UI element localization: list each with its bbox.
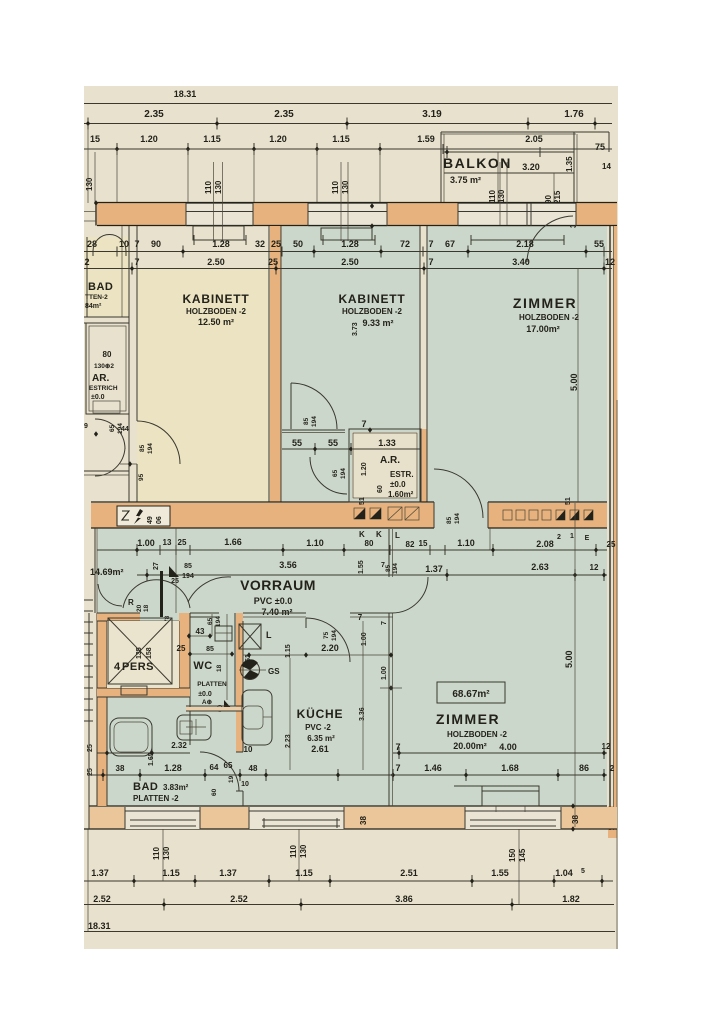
svg-text:E: E [585,535,590,542]
svg-text:R: R [128,598,134,607]
svg-text:1.66: 1.66 [224,537,242,547]
svg-text:2.32: 2.32 [171,741,187,750]
svg-text:68.67m²: 68.67m² [452,689,490,700]
svg-text:1.60m²: 1.60m² [388,490,414,499]
svg-text:110: 110 [331,181,340,194]
svg-text:BALKON: BALKON [443,155,512,171]
svg-text:85: 85 [446,516,453,524]
svg-text:194: 194 [340,468,347,479]
svg-text:1.28: 1.28 [212,239,230,249]
svg-text:PVC -2: PVC -2 [305,723,331,732]
svg-text:1.00: 1.00 [137,538,155,548]
svg-text:2.23: 2.23 [285,734,292,748]
svg-text:2.61: 2.61 [311,744,329,754]
svg-text:±0.0: ±0.0 [390,480,406,489]
svg-text:145: 145 [518,848,527,862]
svg-text:60: 60 [211,788,218,796]
svg-text:194: 194 [454,513,461,524]
svg-text:KABINETT: KABINETT [338,292,405,306]
svg-text:7: 7 [395,763,400,773]
svg-text:1.37: 1.37 [91,868,109,878]
svg-text:3.40: 3.40 [512,257,530,267]
svg-text:1.33: 1.33 [378,438,396,448]
svg-text:A⊕: A⊕ [202,699,213,706]
svg-text:2.50: 2.50 [341,257,359,267]
svg-text:1.37: 1.37 [219,868,237,878]
svg-text:3.36: 3.36 [359,707,366,721]
svg-text:55: 55 [292,438,302,448]
svg-text:25: 25 [87,744,94,752]
svg-text:1.55: 1.55 [491,868,509,878]
svg-text:2: 2 [84,257,89,267]
svg-text:1.20: 1.20 [361,462,368,476]
svg-text:7: 7 [428,257,433,267]
svg-text:25: 25 [607,540,616,549]
svg-text:7: 7 [134,257,139,267]
svg-text:1.15: 1.15 [295,868,313,878]
svg-text:25: 25 [171,578,179,585]
svg-text:3.20: 3.20 [522,162,540,172]
svg-text:85: 85 [206,646,214,653]
svg-text:1.65: 1.65 [148,752,155,766]
svg-text:ESTR.: ESTR. [390,470,414,479]
svg-text:PLATTEN: PLATTEN [197,681,227,688]
svg-text:ESTRICH: ESTRICH [89,385,118,392]
svg-text:1.15: 1.15 [203,134,221,144]
svg-text:K: K [359,530,365,539]
svg-text:12: 12 [590,563,599,572]
svg-text:BAD: BAD [133,781,158,793]
svg-text:130: 130 [85,177,94,191]
svg-text:85: 85 [303,417,310,425]
svg-text:110: 110 [488,190,497,203]
svg-text:38: 38 [359,816,368,825]
svg-text:1.35: 1.35 [565,156,574,172]
svg-text:1.28: 1.28 [341,239,359,249]
svg-text:5.00: 5.00 [564,650,574,668]
svg-text:50: 50 [293,239,303,249]
svg-text:18: 18 [143,604,150,612]
svg-text:1: 1 [570,533,574,540]
svg-text:3.73: 3.73 [352,322,359,336]
svg-text:55: 55 [328,438,338,448]
svg-text:14: 14 [602,162,611,171]
svg-text:194: 194 [215,616,222,627]
svg-text:±0.0: ±0.0 [91,394,105,401]
svg-text:7: 7 [361,419,366,429]
svg-text:1.20: 1.20 [269,134,287,144]
svg-text:110: 110 [289,845,298,858]
svg-text:65: 65 [224,761,233,770]
svg-text:28: 28 [87,239,97,249]
svg-text:GS: GS [268,667,280,676]
svg-text:80: 80 [365,539,374,548]
svg-text:1.76: 1.76 [564,109,584,120]
svg-text:130: 130 [214,180,223,194]
svg-text:HOLZBODEN -2: HOLZBODEN -2 [342,307,403,316]
svg-text:130: 130 [299,844,308,858]
svg-text:10: 10 [244,745,253,754]
svg-text:ZIMMER: ZIMMER [436,711,500,727]
svg-text:20.00m²: 20.00m² [453,741,487,751]
svg-text:65: 65 [207,617,214,625]
svg-text:L: L [266,630,272,640]
svg-text:2.50: 2.50 [207,257,225,267]
svg-text:5: 5 [581,868,585,875]
svg-text:95: 95 [138,473,145,481]
svg-text:TTEN-2: TTEN-2 [85,294,108,301]
svg-text:110: 110 [204,181,213,194]
svg-text:PLATTEN -2: PLATTEN -2 [133,794,179,803]
svg-text:1.68: 1.68 [501,763,519,773]
svg-text:2: 2 [610,764,615,773]
svg-text:L: L [395,531,400,540]
svg-text:150: 150 [508,848,517,862]
svg-text:25: 25 [271,239,281,249]
svg-text:2: 2 [557,534,561,541]
svg-text:85: 85 [139,444,146,452]
svg-text:12: 12 [602,742,611,751]
svg-text:PVC ±0.0: PVC ±0.0 [254,596,292,606]
svg-text:67: 67 [445,239,455,249]
svg-text:HOLZBODEN -2: HOLZBODEN -2 [447,730,508,739]
svg-text:90: 90 [151,239,161,249]
svg-text:3.86: 3.86 [395,894,413,904]
svg-text:2.08: 2.08 [536,539,554,549]
svg-text:3.19: 3.19 [422,109,442,120]
svg-text:HOLZBODEN -2: HOLZBODEN -2 [519,313,580,322]
svg-text:WC: WC [193,660,212,672]
svg-text:44: 44 [121,426,129,433]
svg-text:BAD: BAD [88,281,113,293]
svg-text:1.10: 1.10 [306,538,324,548]
svg-text:ZIMMER: ZIMMER [513,295,577,311]
svg-text:±0.0: ±0.0 [198,691,212,698]
svg-text:6.35 m²: 6.35 m² [307,734,335,743]
svg-text:5.00: 5.00 [569,373,579,391]
svg-text:25: 25 [178,538,187,547]
svg-text:1.82: 1.82 [562,894,580,904]
svg-text:86: 86 [579,763,589,773]
svg-text:19: 19 [228,775,235,783]
svg-text:2.35: 2.35 [144,109,164,120]
svg-text:1.59: 1.59 [417,134,435,144]
svg-text:HOLZBODEN -2: HOLZBODEN -2 [186,307,247,316]
svg-text:18.31: 18.31 [88,921,111,931]
svg-text:84m²: 84m² [85,303,102,310]
svg-text:38: 38 [116,764,125,773]
svg-text:17.00m²: 17.00m² [526,324,560,334]
svg-text:1.04: 1.04 [555,868,573,878]
svg-text:51: 51 [359,497,366,505]
svg-text:06: 06 [156,516,163,524]
svg-text:51: 51 [565,497,572,505]
svg-text:7.40 m²: 7.40 m² [261,607,292,617]
svg-text:1.28: 1.28 [164,763,182,773]
svg-text:194: 194 [392,563,399,574]
svg-text:158: 158 [146,647,153,659]
svg-text:1.15: 1.15 [285,644,292,658]
svg-text:1.00: 1.00 [361,632,368,646]
svg-text:82: 82 [406,540,415,549]
svg-text:27: 27 [153,562,160,570]
svg-text:49: 49 [147,516,154,524]
svg-text:1.37: 1.37 [425,564,443,574]
svg-text:130: 130 [341,180,350,194]
svg-text:1.20: 1.20 [140,134,158,144]
svg-text:60: 60 [377,485,384,493]
svg-text:10: 10 [241,781,249,788]
svg-text:1.10: 1.10 [457,538,475,548]
svg-text:1.46: 1.46 [424,763,442,773]
svg-text:110: 110 [152,847,161,860]
svg-text:2.20: 2.20 [321,643,339,653]
svg-text:18.31: 18.31 [174,89,197,99]
svg-text:1.15: 1.15 [332,134,350,144]
svg-text:K: K [376,530,382,539]
svg-text:85: 85 [184,563,192,570]
svg-text:55: 55 [594,239,604,249]
svg-text:2.63: 2.63 [531,562,549,572]
svg-text:15: 15 [419,539,428,548]
svg-text:9.33 m²: 9.33 m² [362,318,393,328]
svg-text:4.00: 4.00 [499,742,517,752]
svg-text:2.51: 2.51 [400,868,418,878]
svg-text:3.75 m²: 3.75 m² [450,175,481,185]
svg-text:2.18: 2.18 [516,239,534,249]
svg-text:25: 25 [177,644,186,653]
svg-text:7: 7 [395,742,400,752]
svg-text:38: 38 [571,815,580,824]
svg-text:135: 135 [136,647,143,659]
svg-text:1.15: 1.15 [162,868,180,878]
svg-text:2.52: 2.52 [93,894,111,904]
svg-text:KÜCHE: KÜCHE [297,706,344,721]
svg-text:194: 194 [182,573,194,580]
svg-text:75: 75 [323,631,330,639]
svg-text:20: 20 [136,604,143,612]
svg-text:80: 80 [103,350,112,359]
svg-text:18: 18 [216,664,223,672]
svg-text:130: 130 [162,846,171,860]
svg-text:VORRAUM: VORRAUM [240,577,316,593]
svg-text:130⊕2: 130⊕2 [94,363,114,370]
svg-text:12.50 m²: 12.50 m² [198,317,234,327]
svg-text:64: 64 [210,763,219,772]
svg-text:32: 32 [255,239,265,249]
svg-text:75: 75 [595,142,605,152]
svg-text:3.56: 3.56 [279,560,297,570]
svg-text:9: 9 [84,423,88,430]
svg-text:65: 65 [332,469,339,477]
svg-text:1.55: 1.55 [358,560,365,574]
svg-text:2.05: 2.05 [525,134,543,144]
svg-text:7: 7 [381,621,388,625]
svg-text:13: 13 [163,538,172,547]
svg-text:12: 12 [605,257,615,267]
svg-text:3.83m²: 3.83m² [163,783,189,792]
svg-text:65: 65 [109,424,116,432]
svg-text:72: 72 [400,239,410,249]
svg-text:43: 43 [196,627,205,636]
svg-text:2.35: 2.35 [274,109,294,120]
svg-text:A.R.: A.R. [380,455,400,466]
svg-text:KABINETT: KABINETT [182,292,249,306]
svg-text:194: 194 [311,416,318,427]
svg-text:1.00: 1.00 [381,666,388,680]
svg-text:AR.: AR. [92,373,109,384]
svg-text:194: 194 [147,443,154,454]
svg-text:7: 7 [428,239,433,249]
svg-text:15: 15 [90,134,100,144]
svg-text:7: 7 [358,613,363,622]
svg-text:4 PERS: 4 PERS [114,661,154,673]
svg-text:2.52: 2.52 [230,894,248,904]
svg-text:48: 48 [249,764,258,773]
svg-text:25: 25 [268,257,278,267]
svg-text:194: 194 [331,630,338,641]
